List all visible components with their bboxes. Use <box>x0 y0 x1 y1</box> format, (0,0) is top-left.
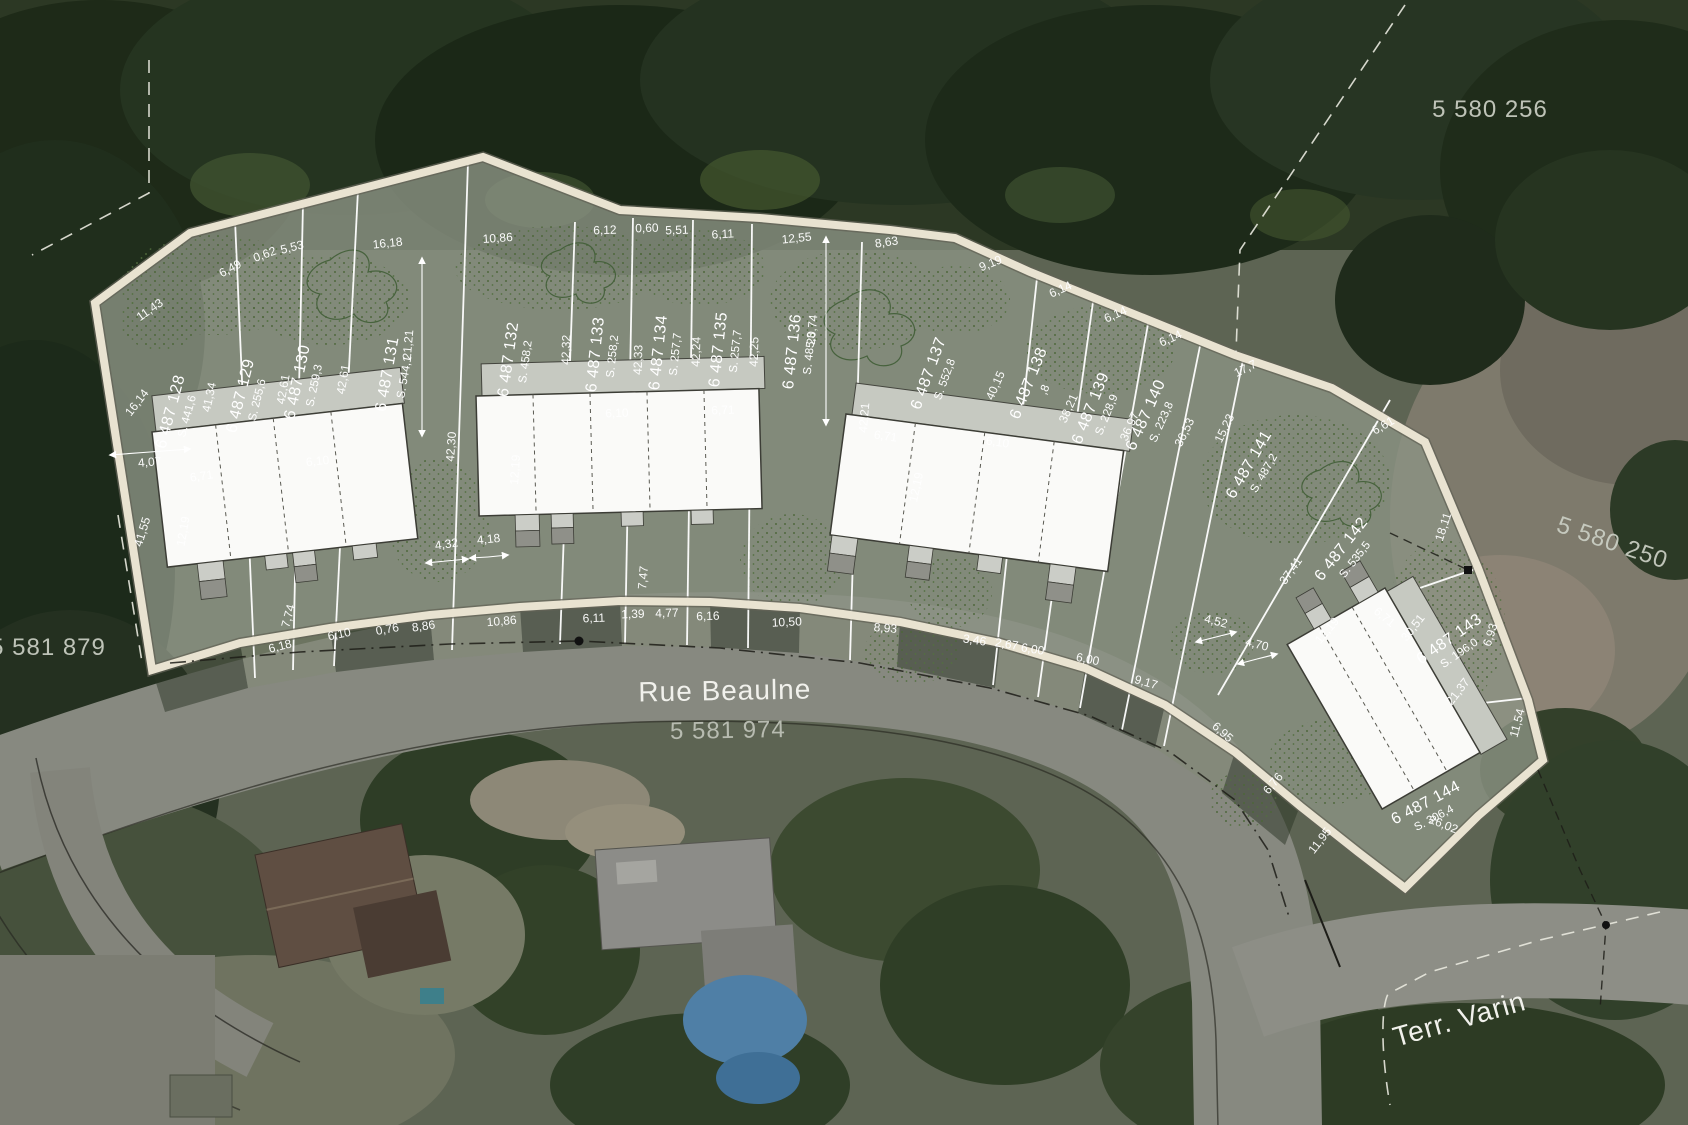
dimension-label: 42,21 <box>856 402 873 433</box>
dimension-label: 4,07 <box>137 454 162 470</box>
dimension-label: 6,12 <box>593 223 617 238</box>
survey-point <box>1602 921 1610 929</box>
dimension-label: 6,11 <box>582 611 605 626</box>
street-name-label: Rue Beaulne <box>638 673 811 707</box>
site-plan-screenshot: 6 487 128S. 441,6 6 487 129S. 255,6 6 48… <box>0 0 1688 1125</box>
survey-point <box>575 637 584 646</box>
dimension-label: 6,16 <box>696 609 720 624</box>
dimension-label: 42,32 <box>558 334 573 365</box>
dimension-label: 10,86 <box>486 613 517 630</box>
dimension-label: 20,74 <box>804 314 821 345</box>
dimension-label: 12,19 <box>507 454 523 485</box>
blue-tarp-pool <box>683 975 807 1065</box>
dimension-label: 4,18 <box>476 531 501 547</box>
dimension-label: 7,47 <box>635 565 651 590</box>
dimension-label: 8,93 <box>873 620 898 636</box>
dimension-label: 6,10 <box>305 453 330 469</box>
dimension-label: 42,33 <box>630 344 645 375</box>
dimension-label: 42,24 <box>688 336 703 367</box>
dimension-label: 6,10 <box>605 406 629 421</box>
dimension-label: 10,86 <box>482 230 513 246</box>
neighbor-parcel-left: 5 581 879 <box>0 634 106 661</box>
dimension-label: 0,60 <box>635 221 659 236</box>
dimension-label: 42,30 <box>443 431 459 462</box>
neighbor-parcel-top: 5 580 256 <box>1432 96 1548 123</box>
dimension-label: 1,39 <box>621 607 645 622</box>
dimension-label: 42,25 <box>746 336 761 367</box>
dimension-label: 6,11 <box>711 226 734 241</box>
dimension-label: 6,71 <box>711 403 735 418</box>
dimension-label: 10,50 <box>771 614 802 630</box>
site-plan-map: 6 487 128S. 441,6 6 487 129S. 255,6 6 48… <box>0 0 1688 1125</box>
dimension-label: 4,77 <box>655 606 679 621</box>
survey-point <box>1464 566 1472 574</box>
street-parcel-number: 5 581 974 <box>670 716 786 745</box>
road-terr-varin <box>1248 951 1688 992</box>
dimension-label: 5,51 <box>665 223 689 238</box>
dimension-label: 21,21 <box>400 329 417 360</box>
